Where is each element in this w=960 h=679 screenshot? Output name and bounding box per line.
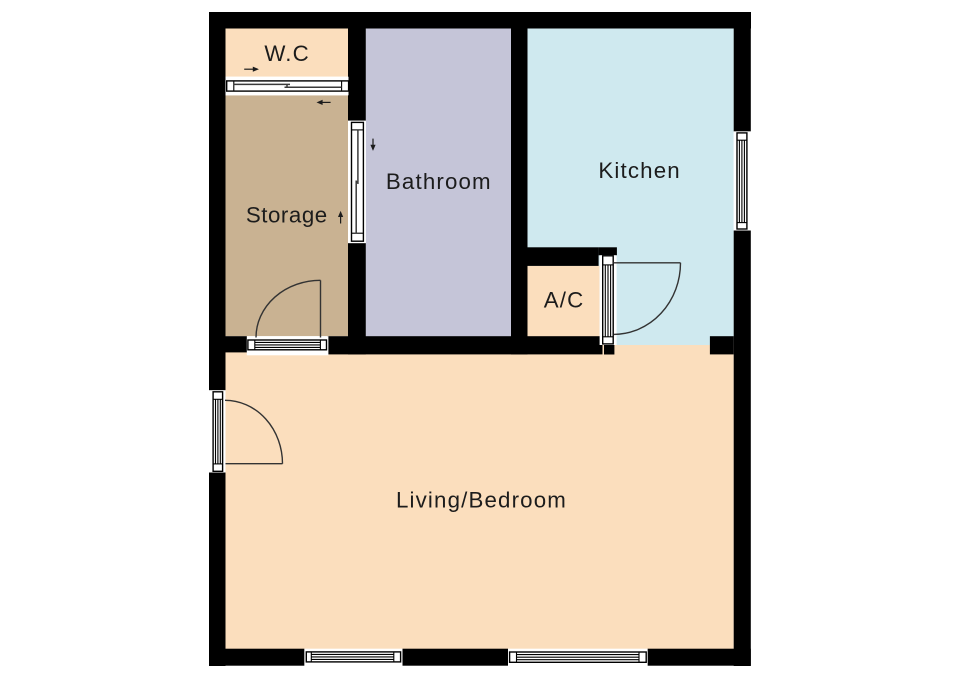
svg-text:Living/Bedroom: Living/Bedroom: [396, 487, 567, 512]
svg-text:Kitchen: Kitchen: [598, 158, 680, 183]
svg-text:Storage: Storage: [246, 202, 328, 227]
svg-text:W.C: W.C: [264, 41, 310, 66]
svg-text:Bathroom: Bathroom: [386, 169, 492, 194]
svg-text:A/C: A/C: [544, 287, 585, 312]
